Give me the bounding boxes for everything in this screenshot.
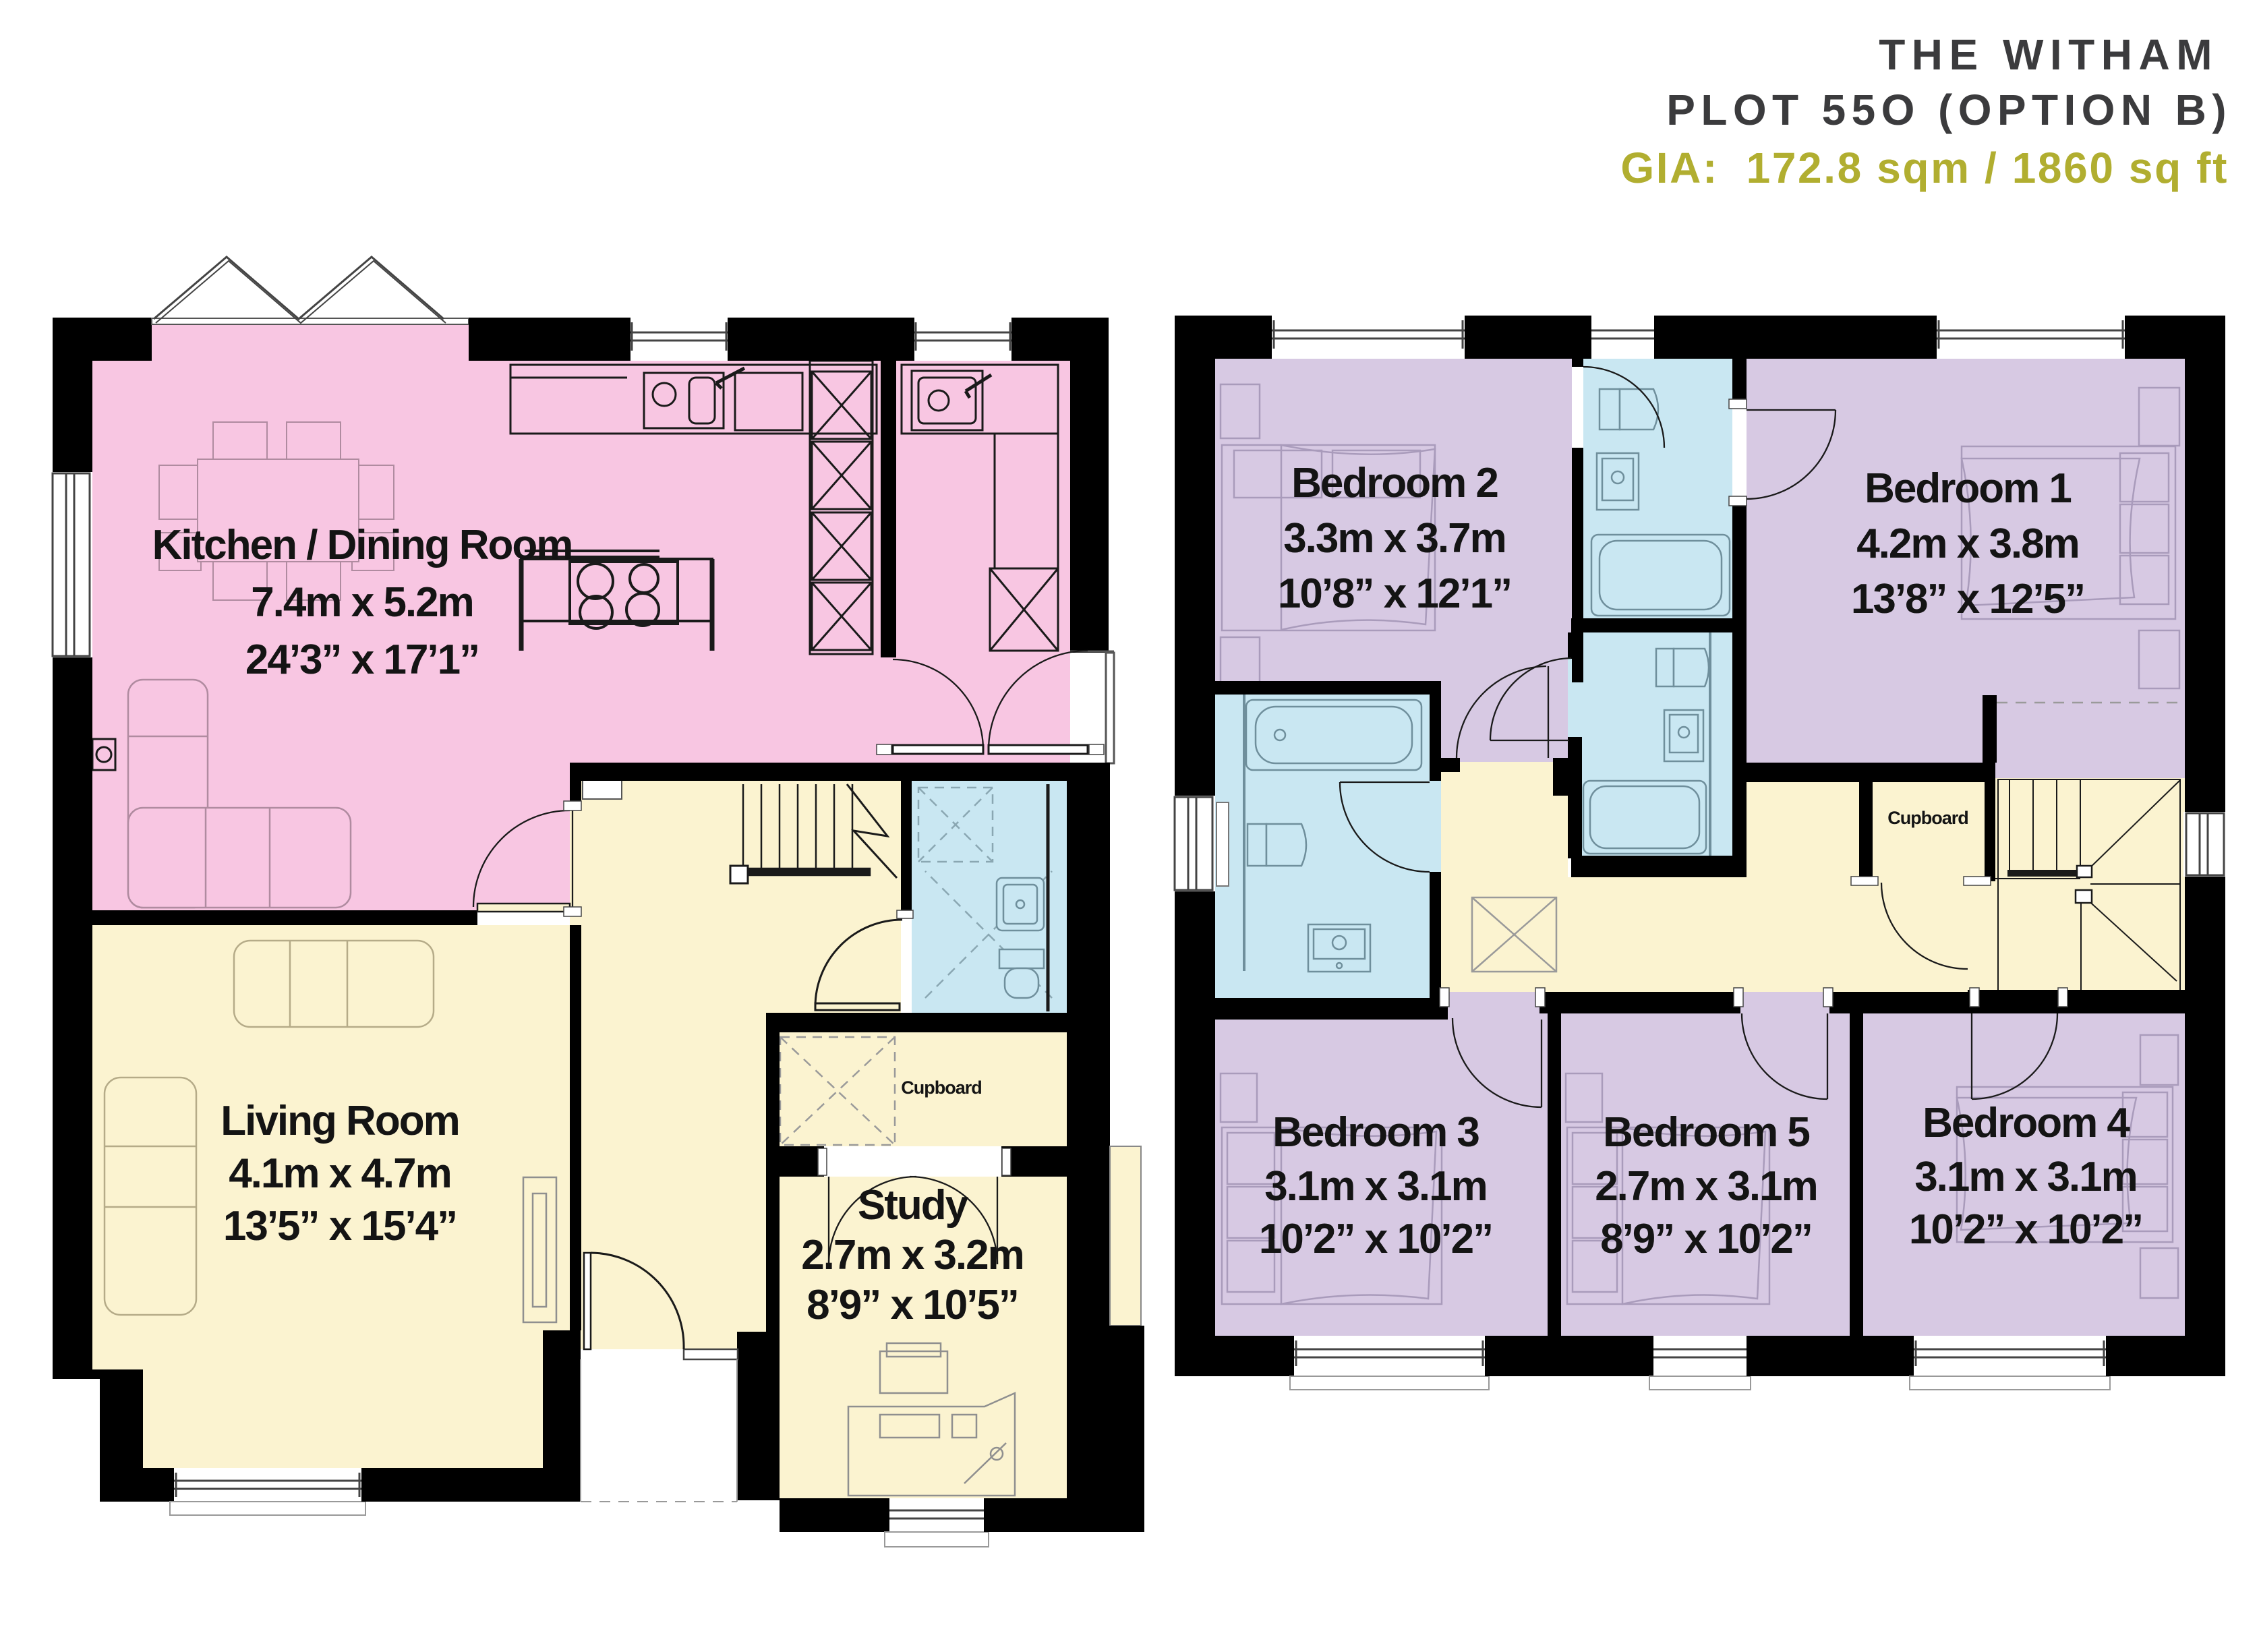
svg-text:8’9” x 10’2”: 8’9” x 10’2”	[1600, 1216, 1812, 1262]
svg-text:Living Room: Living Room	[221, 1098, 459, 1144]
svg-text:3.1m x 3.1m: 3.1m x 3.1m	[1264, 1163, 1487, 1210]
svg-text:10’2” x 10’2”: 10’2” x 10’2”	[1259, 1216, 1492, 1262]
svg-text:4.1m x 4.7m: 4.1m x 4.7m	[229, 1150, 451, 1197]
svg-text:2.7m x 3.1m: 2.7m x 3.1m	[1595, 1163, 1817, 1210]
svg-text:GIA: 172.8 sqm / 1860 sq ft: GIA: 172.8 sqm / 1860 sq ft	[1620, 144, 2229, 192]
svg-text:Bedroom 3: Bedroom 3	[1272, 1109, 1479, 1156]
svg-text:2.7m x 3.2m: 2.7m x 3.2m	[801, 1232, 1024, 1278]
svg-text:13’8” x 12’5”: 13’8” x 12’5”	[1851, 576, 2084, 622]
svg-text:8’9” x 10’5”: 8’9” x 10’5”	[806, 1282, 1018, 1328]
svg-text:Cupboard: Cupboard	[1887, 808, 1968, 828]
svg-text:PLOT 55O (OPTION B): PLOT 55O (OPTION B)	[1666, 86, 2232, 134]
svg-text:Cupboard: Cupboard	[901, 1078, 982, 1098]
svg-text:Bedroom 4: Bedroom 4	[1923, 1100, 2130, 1146]
svg-text:10’2” x 10’2”: 10’2” x 10’2”	[1909, 1206, 2142, 1253]
svg-text:Study: Study	[858, 1182, 969, 1229]
svg-text:Bedroom 5: Bedroom 5	[1603, 1109, 1809, 1156]
svg-text:THE WITHAM: THE WITHAM	[1879, 30, 2219, 79]
svg-text:Bedroom 1: Bedroom 1	[1865, 465, 2071, 512]
svg-text:10’8” x 12’1”: 10’8” x 12’1”	[1278, 570, 1511, 617]
svg-text:7.4m x 5.2m: 7.4m x 5.2m	[251, 579, 473, 626]
svg-text:3.3m x 3.7m: 3.3m x 3.7m	[1283, 515, 1506, 562]
svg-text:13’5” x 15’4”: 13’5” x 15’4”	[223, 1203, 457, 1249]
svg-text:24’3” x 17’1”: 24’3” x 17’1”	[245, 637, 479, 683]
svg-text:Bedroom 2: Bedroom 2	[1291, 460, 1498, 506]
svg-text:Kitchen / Dining Room: Kitchen / Dining Room	[152, 522, 573, 568]
svg-text:4.2m x 3.8m: 4.2m x 3.8m	[1856, 521, 2079, 567]
svg-text:3.1m x 3.1m: 3.1m x 3.1m	[1914, 1154, 2137, 1200]
